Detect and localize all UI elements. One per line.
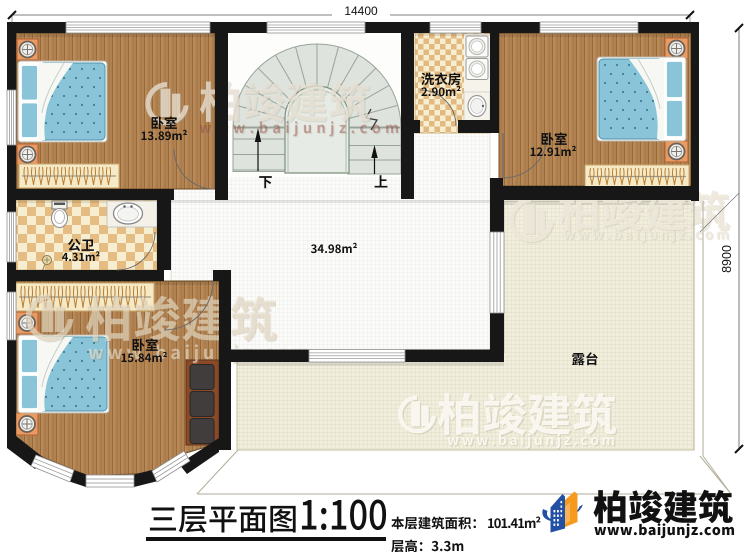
svg-text:14400: 14400: [344, 4, 378, 18]
svg-text:8900: 8900: [720, 245, 734, 273]
